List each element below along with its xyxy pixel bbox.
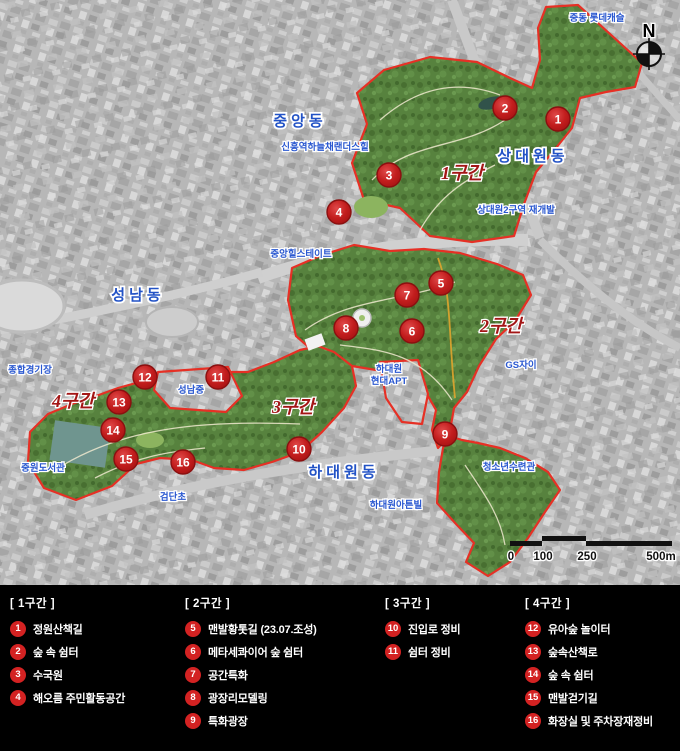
map-marker-1: 1 [546,107,570,131]
facility-label: 중동 롯데캐슬 [569,12,624,24]
legend-item-label: 맨발걷기길 [548,690,598,706]
map-marker-9: 9 [433,422,457,446]
scale-label: 250 [577,551,596,563]
map-canvas: 중앙동상대원동성남동하대원동중동 롯데캐슬신흥역하늘채랜더스힐상대원2구역 재개… [0,0,680,585]
district-label: 하대원동 [308,464,379,481]
facility-label: 검단초 [160,491,186,503]
facility-label: 청소년수련관 [483,461,536,473]
legend-item: 11쉼터 정비 [385,640,460,663]
map-marker-3: 3 [377,163,401,187]
legend-item-label: 맨발황톳길 (23.07.조성) [208,621,317,637]
scale-label: 100 [533,551,552,563]
marker-number: 11 [212,370,225,384]
legend-item-badge: 12 [525,621,541,637]
district-label: 중앙동 [273,112,326,130]
legend-item: 12유아숲 놀이터 [525,617,653,640]
district-label: 성남동 [111,286,164,304]
legend-section-4: [ 4구간 ]12유아숲 놀이터13숲속산책로14숲 속 쉼터15맨발걷기길16… [525,595,653,732]
legend-item-badge: 16 [525,713,541,729]
legend-item: 14숲 속 쉼터 [525,663,653,686]
legend-item-badge: 2 [10,644,26,660]
marker-number: 16 [176,455,190,469]
facility-label: 중앙힐스테이트 [270,248,331,260]
legend-item-label: 숲속산책로 [548,644,598,660]
legend-item-label: 화장실 및 주차장재정비 [548,713,653,729]
map-marker-7: 7 [395,283,419,307]
legend-item-badge: 1 [10,621,26,637]
legend-item: 8광장리모델링 [185,686,317,709]
legend-item-label: 광장리모델링 [208,690,268,706]
section-label: 2구간 [479,316,525,336]
scale-label: 0 [508,551,514,563]
legend-item-badge: 5 [185,621,201,637]
legend-item: 9특화광장 [185,709,317,732]
facility-label: 신흥역하늘채랜더스힐 [281,141,368,153]
marker-number: 3 [386,168,393,182]
legend-item-badge: 10 [385,621,401,637]
scale-label: 500m [646,551,675,563]
legend-item: 15맨발걷기길 [525,686,653,709]
legend-item-badge: 3 [10,667,26,683]
map-marker-12: 12 [133,365,157,389]
section-label: 4구간 [51,391,97,411]
facility-label: 하대원아튼빌 [370,499,423,511]
park-plan-map-infographic: 중앙동상대원동성남동하대원동중동 롯데캐슬신흥역하늘채랜더스힐상대원2구역 재개… [0,0,680,751]
legend-item-label: 특화광장 [208,713,248,729]
marker-number: 2 [502,101,509,115]
legend-item-label: 숲 속 쉼터 [548,667,593,683]
section-label: 1구간 [441,163,486,183]
marker-number: 7 [404,288,411,302]
map-marker-14: 14 [101,418,125,442]
marker-number: 4 [336,205,343,219]
map-marker-5: 5 [429,271,453,295]
marker-number: 14 [106,423,120,437]
legend-item-label: 정원산책길 [33,621,83,637]
legend-item-label: 메타세콰이어 숲 쉼터 [208,644,303,660]
map-marker-16: 16 [171,450,195,474]
marker-number: 15 [119,452,133,466]
map-marker-8: 8 [334,316,358,340]
legend-section-title: [ 2구간 ] [185,595,317,611]
legend-item: 6메타세콰이어 숲 쉼터 [185,640,317,663]
legend-item-badge: 9 [185,713,201,729]
legend-item: 10진입로 정비 [385,617,460,640]
legend-panel: [ 1구간 ]1정원산책길2숲 속 쉼터3수국원4해오름 주민활동공간[ 2구간… [0,585,680,751]
facility-label: 중원도서관 [21,462,65,474]
facility-label: 성남중 [178,384,204,396]
legend-item-badge: 8 [185,690,201,706]
marker-number: 9 [442,427,449,441]
map-marker-13: 13 [107,390,131,414]
facility-label: 종합경기장 [8,364,52,376]
facility-label: GS자이 [505,359,536,371]
legend-section-title: [ 4구간 ] [525,595,653,611]
marker-number: 12 [138,370,152,384]
section-label: 3구간 [271,397,317,417]
legend-item: 4해오름 주민활동공간 [10,686,125,709]
legend-item-label: 숲 속 쉼터 [33,644,78,660]
map-marker-11: 11 [206,365,230,389]
legend-item-badge: 15 [525,690,541,706]
district-label: 상대원동 [497,148,568,165]
marker-number: 13 [112,395,126,409]
legend-item-label: 수국원 [33,667,63,683]
marker-number: 8 [343,321,350,335]
map-marker-4: 4 [327,200,351,224]
legend-item: 3수국원 [10,663,125,686]
legend-item-badge: 13 [525,644,541,660]
legend-item: 2숲 속 쉼터 [10,640,125,663]
legend-item-label: 유아숲 놀이터 [548,621,610,637]
marker-number: 10 [292,442,306,456]
map-marker-10: 10 [287,437,311,461]
facility-label: 현대APT [371,375,408,387]
map-marker-15: 15 [114,447,138,471]
legend-section-3: [ 3구간 ]10진입로 정비11쉼터 정비 [385,595,460,663]
legend-item-label: 공간특화 [208,667,248,683]
facility-label: 하대원 [376,363,402,375]
legend-item-badge: 4 [10,690,26,706]
legend-section-title: [ 1구간 ] [10,595,125,611]
legend-item: 16화장실 및 주차장재정비 [525,709,653,732]
aerial-map: 중앙동상대원동성남동하대원동중동 롯데캐슬신흥역하늘채랜더스힐상대원2구역 재개… [0,0,680,585]
legend-section-1: [ 1구간 ]1정원산책길2숲 속 쉼터3수국원4해오름 주민활동공간 [10,595,125,709]
legend-item-badge: 6 [185,644,201,660]
legend-item-badge: 11 [385,644,401,660]
marker-number: 5 [438,276,445,290]
map-marker-6: 6 [400,319,424,343]
map-marker-2: 2 [493,96,517,120]
legend-item-label: 진입로 정비 [408,621,460,637]
legend-item: 13숲속산책로 [525,640,653,663]
legend-item-label: 해오름 주민활동공간 [33,690,125,706]
legend-item-badge: 7 [185,667,201,683]
legend-item: 5맨발황톳길 (23.07.조성) [185,617,317,640]
legend-item: 1정원산책길 [10,617,125,640]
facility-label: 상대원2구역 재개발 [477,204,555,216]
legend-item-badge: 14 [525,667,541,683]
legend-section-2: [ 2구간 ]5맨발황톳길 (23.07.조성)6메타세콰이어 숲 쉼터7공간특… [185,595,317,732]
legend-section-title: [ 3구간 ] [385,595,460,611]
marker-number: 6 [409,324,416,338]
legend-item: 7공간특화 [185,663,317,686]
legend-item-label: 쉼터 정비 [408,644,451,660]
marker-number: 1 [555,112,562,126]
